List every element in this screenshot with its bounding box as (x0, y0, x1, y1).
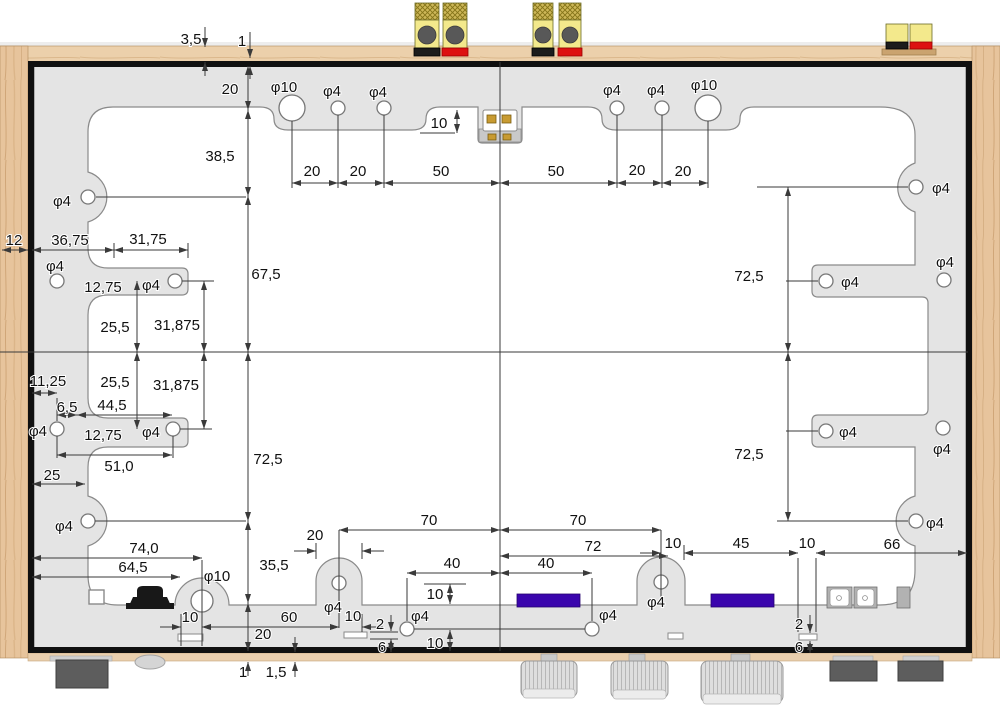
drill-hole (819, 274, 833, 288)
dim-label: φ4 (933, 441, 951, 458)
dim-label: 1,5 (266, 664, 287, 681)
drill-hole (936, 421, 950, 435)
dim-label: 20 (629, 162, 646, 179)
dim-label: 6 (378, 639, 386, 656)
cad-panel-drawing-screenshot: 3,512038,567,572,535,52011,5φ10φ4φ410φ4φ… (0, 0, 1000, 708)
dim-label: 50 (433, 163, 450, 180)
dim-label: φ4 (53, 193, 71, 210)
dim-label: 66 (884, 536, 901, 553)
dim-label: φ4 (369, 84, 387, 101)
dim-label: φ4 (936, 254, 954, 271)
dim-label: φ4 (603, 82, 621, 99)
dim-label: 72,5 (253, 451, 282, 468)
dim-label: φ4 (647, 594, 665, 611)
dim-label: 72,5 (734, 268, 763, 285)
dim-label: 10 (431, 115, 448, 132)
dim-label: 51,0 (104, 458, 133, 475)
panel-drilling-drawing: 3,512038,567,572,535,52011,5φ10φ4φ410φ4φ… (0, 0, 1000, 708)
dim-label: 25 (44, 467, 61, 484)
drill-hole (81, 190, 95, 204)
drill-hole (166, 422, 180, 436)
corner-bracket (89, 590, 104, 604)
dim-label: 72 (585, 538, 602, 555)
dim-label: 20 (222, 81, 239, 98)
drill-hole (937, 273, 951, 287)
rubber-foot (898, 661, 943, 681)
drill-hole (168, 274, 182, 288)
dim-label: 31,875 (154, 317, 200, 334)
dim-label: 12,75 (84, 427, 122, 444)
drill-hole (610, 101, 624, 115)
wood-top-edge (0, 46, 1000, 62)
dim-label: 3,5 (181, 31, 202, 48)
inlet-contact (502, 115, 511, 123)
dim-label: φ10 (204, 568, 230, 585)
dim-label: 1 (239, 664, 247, 681)
fuse-cap (135, 655, 165, 669)
speaker-terminal-black (532, 3, 554, 56)
dim-label: 6,5 (57, 399, 78, 416)
wood-right-side (972, 46, 1000, 658)
drill-hole (819, 424, 833, 438)
dim-label: 10 (799, 535, 816, 552)
drill-hole (909, 514, 923, 528)
dim-label: φ4 (55, 518, 73, 535)
dim-label: 40 (444, 555, 461, 572)
speaker-terminal-black (414, 3, 440, 56)
dim-label: 12 (6, 232, 23, 249)
dim-label: φ10 (271, 79, 297, 96)
drill-hole (655, 101, 669, 115)
dim-label: φ4 (29, 423, 47, 440)
drill-hole (50, 422, 64, 436)
drill-hole (909, 180, 923, 194)
dim-label: φ4 (323, 83, 341, 100)
dim-label: 72,5 (734, 446, 763, 463)
dim-label: φ4 (142, 424, 160, 441)
fuse-holder-blocks (827, 587, 910, 608)
drill-hole (695, 95, 721, 121)
dim-label: φ4 (841, 274, 859, 291)
speaker-terminal-red (442, 3, 468, 56)
drill-hole (279, 95, 305, 121)
dim-label: 25,5 (100, 319, 129, 336)
dim-label: φ4 (647, 82, 665, 99)
dim-label: φ4 (932, 180, 950, 197)
dim-label: φ4 (142, 277, 160, 294)
dim-label: 2 (795, 616, 803, 633)
dim-label: 6 (795, 639, 803, 656)
dim-label: 70 (570, 512, 587, 529)
dim-label: φ4 (46, 258, 64, 275)
dim-label: 10 (665, 535, 682, 552)
connector-purple (517, 594, 580, 607)
toggle-switch-base (126, 603, 174, 609)
dim-label: 60 (281, 609, 298, 626)
drill-hole (331, 101, 345, 115)
dim-label: 67,5 (251, 266, 280, 283)
dim-label: 38,5 (205, 148, 234, 165)
dim-label: 10 (427, 586, 444, 603)
dim-label: 10 (182, 609, 199, 626)
wood-bottom-edge (28, 653, 972, 661)
dim-label: φ4 (411, 608, 429, 625)
dim-label: 40 (538, 555, 555, 572)
inlet-contact (487, 115, 496, 123)
connector-purple (711, 594, 774, 607)
speaker-terminal-red (558, 3, 582, 56)
dim-label: φ4 (926, 515, 944, 532)
dim-label: φ4 (324, 599, 342, 616)
dim-label: 20 (307, 527, 324, 544)
rubber-foot (56, 660, 108, 688)
dim-label: 11,25 (30, 373, 66, 390)
dim-label: φ4 (599, 607, 617, 624)
dim-label: 50 (548, 163, 565, 180)
dim-label: 44,5 (97, 397, 126, 414)
dim-label: 10 (427, 635, 444, 652)
drill-hole (585, 622, 599, 636)
drill-hole (50, 274, 64, 288)
drill-hole (377, 101, 391, 115)
dim-label: 20 (304, 163, 321, 180)
dim-label: 20 (255, 626, 272, 643)
dim-label: 64,5 (118, 559, 147, 576)
dim-label: 36,75 (51, 232, 89, 249)
dim-label: 35,5 (259, 557, 288, 574)
dim-label: 45 (733, 535, 750, 552)
dim-label: 31,75 (129, 231, 167, 248)
dim-label: 12,75 (84, 279, 122, 296)
rubber-foot (830, 661, 877, 681)
dim-label: 20 (675, 163, 692, 180)
dim-label: 2 (376, 616, 384, 633)
drill-hole (81, 514, 95, 528)
dim-label: 25,5 (100, 374, 129, 391)
dim-label: 31,875 (153, 377, 199, 394)
dim-label: 20 (350, 163, 367, 180)
dim-label: 1 (238, 33, 246, 50)
dim-label: 74,0 (129, 540, 158, 557)
dim-label: φ4 (839, 424, 857, 441)
dim-label: φ10 (691, 77, 717, 94)
dim-label: 70 (421, 512, 438, 529)
dim-label: 10 (345, 608, 362, 625)
